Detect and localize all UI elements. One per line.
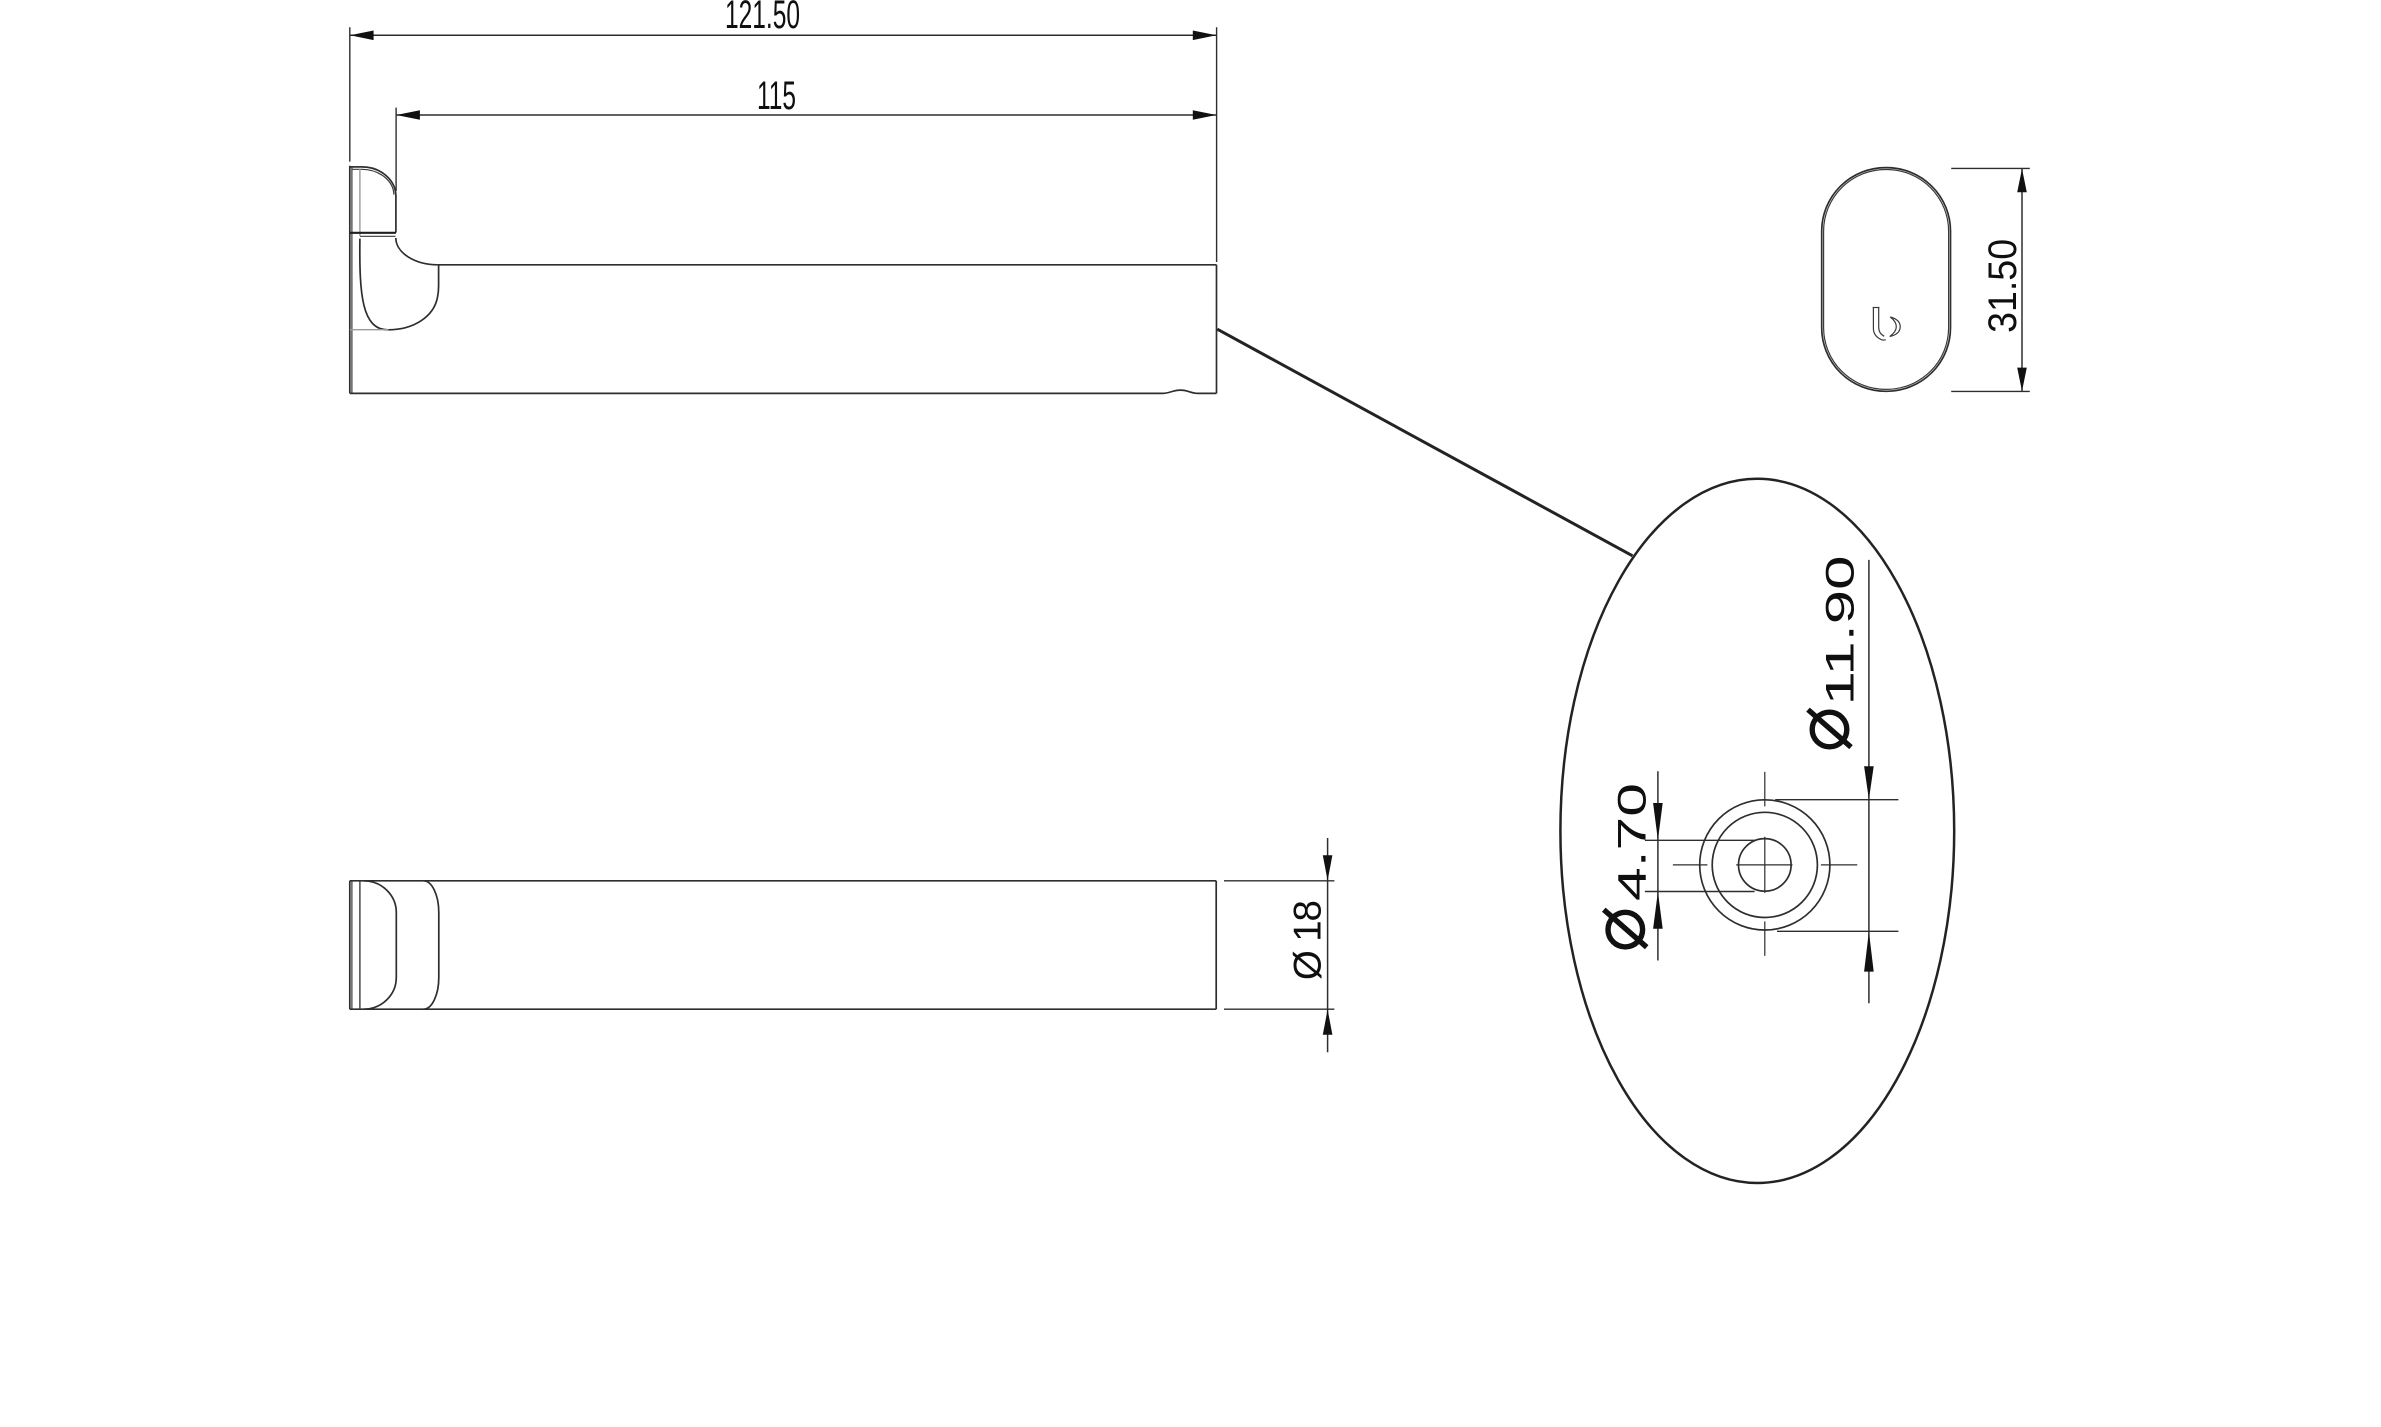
svg-text:31.50: 31.50: [1981, 239, 2025, 333]
svg-text:Ø 18: Ø 18: [1287, 900, 1330, 980]
svg-text:115: 115: [757, 74, 796, 118]
svg-text:4.70: 4.70: [1611, 783, 1655, 901]
svg-text:11.90: 11.90: [1819, 556, 1863, 706]
svg-text:121.50: 121.50: [725, 0, 800, 37]
